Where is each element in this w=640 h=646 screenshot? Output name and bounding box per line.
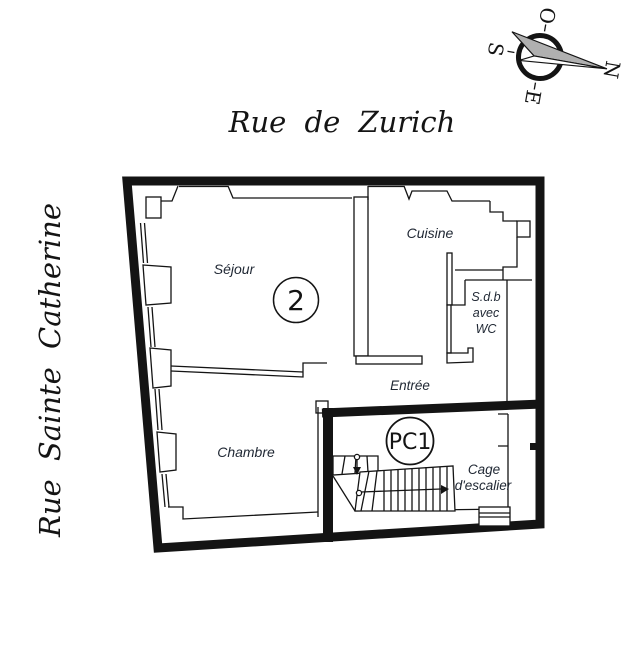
floor-plan-page: N E S O Rue de Zurich Rue Sainte Catheri… (0, 0, 640, 646)
compass-letter-o: O (534, 5, 560, 25)
pc1-label: PC1 (389, 430, 432, 455)
room-label-cuisine: Cuisine (407, 225, 454, 241)
compass-rose: N E S O (475, 0, 632, 119)
pc1-badge: PC1 (387, 418, 434, 465)
room-label-cage-line2: d'escalier (455, 478, 512, 493)
room-label-sdb-line3: WC (476, 322, 498, 336)
floor-plan-figure: N E S O Rue de Zurich Rue Sainte Catheri… (0, 0, 640, 646)
room-label-sdb-line1: S.d.b (471, 290, 500, 304)
room-label-entree: Entrée (390, 378, 430, 393)
apartment-number-badge: 2 (274, 278, 319, 323)
street-name-top: Rue de Zurich (228, 105, 456, 139)
compass-letter-e: E (520, 88, 546, 107)
compass-letter-s: S (483, 40, 509, 58)
street-name-left: Rue Sainte Catherine (33, 203, 67, 538)
compass-letter-n: N (599, 59, 626, 80)
room-label-sejour: Séjour (214, 261, 256, 277)
room-label-sdb-line2: avec (473, 306, 500, 320)
apartment-number: 2 (287, 284, 305, 317)
staircase (333, 454, 455, 511)
room-label-chambre: Chambre (217, 444, 275, 460)
stair-mid-post (356, 490, 361, 495)
stair-start-post (354, 454, 359, 459)
room-label-cage-line1: Cage (468, 462, 500, 477)
